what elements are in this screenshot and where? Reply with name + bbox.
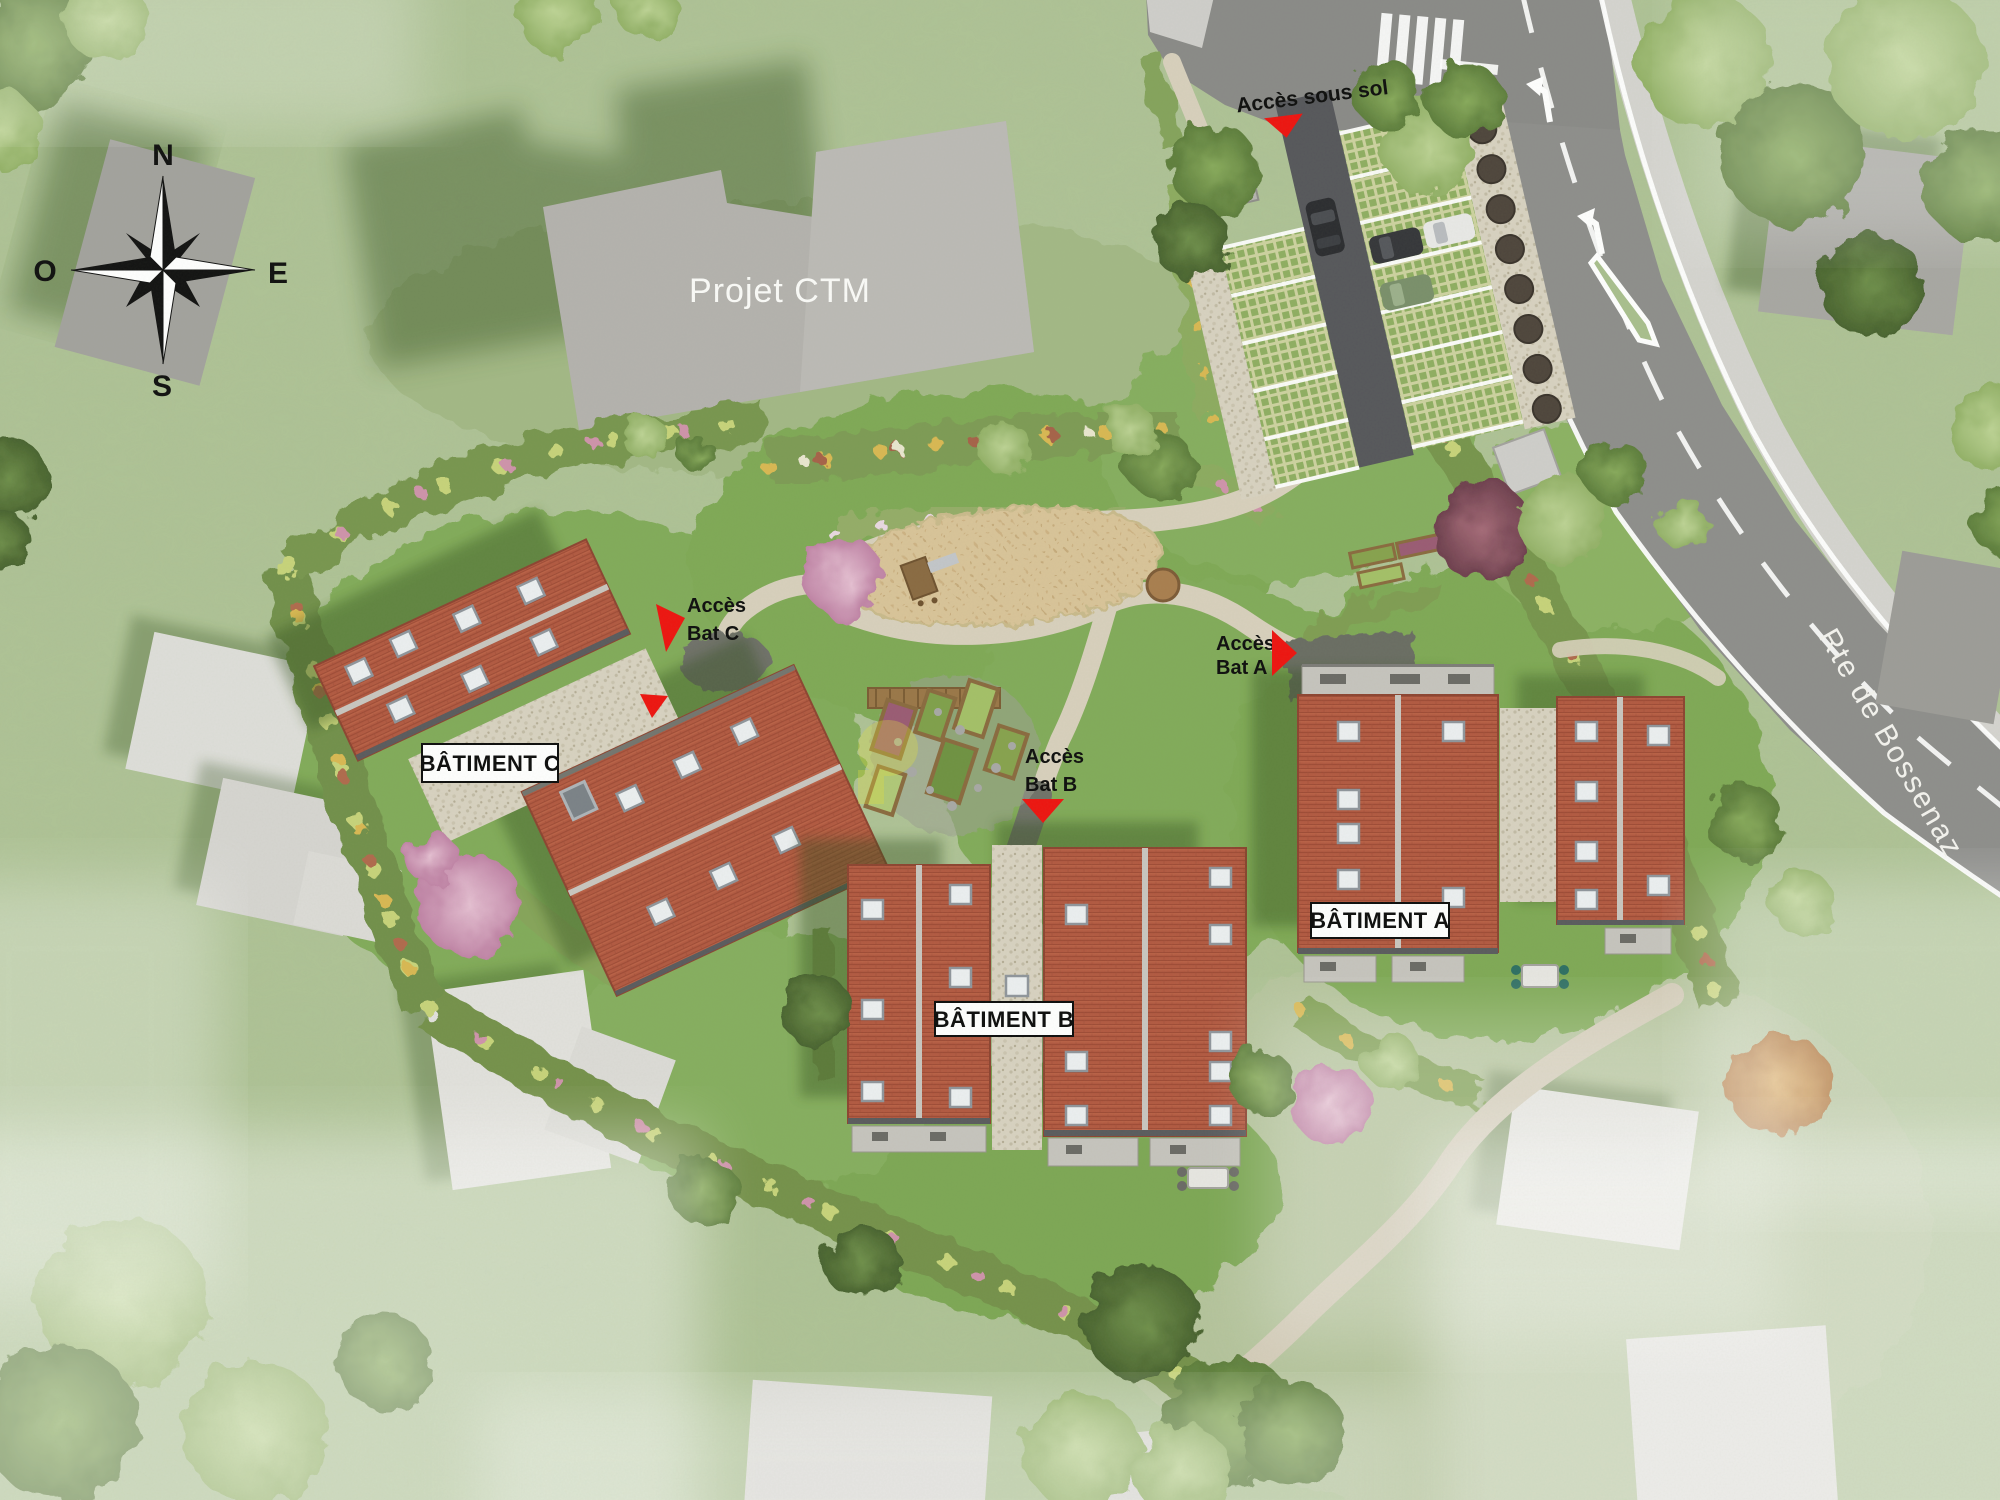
photo-grain: [0, 0, 2000, 1500]
map-canvas: Projet CTM: [0, 0, 2000, 1500]
site-plan: Projet CTM: [0, 0, 2000, 1500]
